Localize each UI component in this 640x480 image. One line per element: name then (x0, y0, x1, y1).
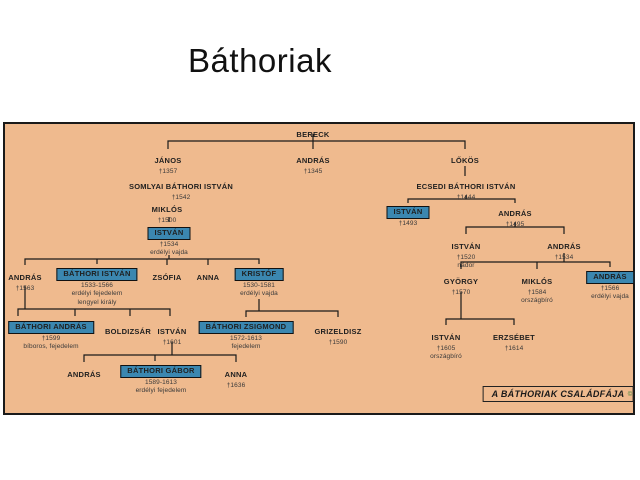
person-name: GYÖRGY (444, 278, 478, 287)
person-dates: †1563 (8, 285, 42, 293)
person-dates: †1534 (547, 254, 581, 262)
person-name: ANDRÁS (8, 274, 42, 283)
person-name: BOLDIZSÁR (105, 328, 151, 337)
person-name: ISTVÁN (147, 227, 190, 240)
person-name: ISTVÁN (157, 328, 186, 337)
person-name: ANDRÁS (586, 271, 634, 284)
person-name: BÁTHORI ISTVÁN (56, 268, 137, 281)
person-name: ANDRÁS (498, 210, 532, 219)
person-dates: †1566 (586, 285, 634, 293)
person-title: erdélyi fejedelem (120, 387, 201, 395)
person-title: erdélyi vajda (235, 290, 284, 298)
node-ecsedi-bathori-istvan: ECSEDI BÁTHORI ISTVÁN †1444 (416, 176, 515, 202)
node-kristof: KRISTÓF 1530-1581 erdélyi vajda (235, 263, 284, 299)
person-dates: †1605 (430, 345, 462, 353)
person-name: MIKLÓS (152, 206, 183, 215)
person-name: ANDRÁS (547, 243, 581, 252)
node-andras-1495: ANDRÁS †1495 (498, 203, 532, 229)
person-title: erdélyi vajda (586, 293, 634, 301)
person-dates: †1614 (493, 345, 535, 353)
tree-caption: A BÁTHORIAK CSALÁDFÁJA (483, 386, 634, 402)
person-name: ISTVÁN (451, 243, 480, 252)
copyright-watermark: © (627, 392, 633, 399)
person-dates: †1584 (521, 289, 553, 297)
person-dates: †1495 (498, 221, 532, 229)
person-name: GRIZELDISZ (314, 328, 361, 337)
person-title: erdélyi fejedelem (56, 290, 137, 298)
person-name: ANNA (225, 371, 248, 380)
person-name: ISTVÁN (431, 334, 460, 343)
person-name: ANDRÁS (67, 371, 101, 380)
person-dates: †1570 (444, 289, 478, 297)
person-dates: †1493 (386, 220, 429, 228)
person-name: MIKLÓS (522, 278, 553, 287)
node-andras-1534: ANDRÁS †1534 (547, 236, 581, 262)
person-title-2: lengyel király (56, 299, 137, 307)
person-dates: †1345 (296, 168, 330, 176)
node-gyorgy: GYÖRGY †1570 (444, 271, 478, 297)
node-istvan-nador: ISTVÁN †1520 nádor (451, 236, 480, 271)
node-bathori-zsigmond: BÁTHORI ZSIGMOND 1572-1613 fejedelem (199, 316, 294, 352)
node-andras-1566: ANDRÁS †1566 erdélyi vajda (586, 266, 634, 302)
node-anna: ANNA (197, 267, 220, 285)
person-dates: †1520 (451, 254, 480, 262)
node-miklos-1584: MIKLÓS †1584 országbíró (521, 271, 553, 306)
node-istvan-1601: ISTVÁN †1601 (157, 321, 186, 347)
node-erzsebet: ERZSÉBET †1614 (493, 327, 535, 353)
person-dates: †1599 (8, 335, 94, 343)
person-name: BÁTHORI ZSIGMOND (199, 321, 294, 334)
person-name: ZSÓFIA (153, 274, 182, 283)
person-dates: †1590 (314, 339, 361, 347)
person-dates: 1589-1613 (120, 379, 201, 387)
node-janos: JÁNOS †1357 (154, 150, 181, 176)
person-dates: †1534 (147, 241, 190, 249)
person-name: ERZSÉBET (493, 334, 535, 343)
person-name: LŐKÖS (451, 157, 479, 166)
person-title: bíboros, fejedelem (8, 343, 94, 351)
node-bathori-gabor: BÁTHORI GÁBOR 1589-1613 erdélyi fejedele… (120, 360, 201, 396)
node-bathori-andras-biboros: BÁTHORI ANDRÁS †1599 bíboros, fejedelem (8, 316, 94, 352)
person-dates: †1601 (157, 339, 186, 347)
node-andras-1345: ANDRÁS †1345 (296, 150, 330, 176)
person-name: BÁTHORI GÁBOR (120, 365, 201, 378)
person-name: BÁTHORI ANDRÁS (8, 321, 94, 334)
person-dates: †1636 (225, 382, 248, 390)
person-dates: †1444 (416, 194, 515, 202)
node-anna-1636: ANNA †1636 (225, 364, 248, 390)
person-name: ANNA (197, 274, 220, 283)
slide: Báthoriak BERECK JÁNOS †1357 ANDRÁS †134… (0, 0, 640, 480)
person-dates: 1530-1581 (235, 282, 284, 290)
person-title: országbíró (521, 297, 553, 305)
person-name: ISTVÁN (386, 206, 429, 219)
page-title: Báthoriak (188, 42, 332, 80)
person-name: BERECK (296, 131, 329, 140)
node-andras-1563: ANDRÁS †1563 (8, 267, 42, 293)
node-boldizsar: BOLDIZSÁR (105, 321, 151, 339)
person-dates: 1572-1613 (199, 335, 294, 343)
node-grizeldisz: GRIZELDISZ †1590 (314, 321, 361, 347)
node-bathori-istvan-kiraly: BÁTHORI ISTVÁN 1533-1566 erdélyi fejedel… (56, 263, 137, 307)
node-istvan-1493: ISTVÁN †1493 (386, 201, 429, 228)
person-title: fejedelem (199, 343, 294, 351)
person-dates: 1533-1566 (56, 282, 137, 290)
node-zsofia: ZSÓFIA (153, 267, 182, 285)
person-name: SOMLYAI BÁTHORI ISTVÁN (129, 183, 233, 192)
person-title: nádor (451, 262, 480, 270)
node-lokos: LŐKÖS (451, 150, 479, 168)
person-name: ANDRÁS (296, 157, 330, 166)
node-andras-g6: ANDRÁS (67, 364, 101, 382)
person-name: ECSEDI BÁTHORI ISTVÁN (416, 183, 515, 192)
person-title: országbíró (430, 353, 462, 361)
person-title: erdélyi vajda (147, 249, 190, 257)
node-istvan-1605: ISTVÁN †1605 országbíró (430, 327, 462, 362)
person-name: JÁNOS (154, 157, 181, 166)
node-istvan-vajda-1534: ISTVÁN †1534 erdélyi vajda (147, 222, 190, 258)
node-bereck: BERECK (296, 124, 329, 142)
person-name: KRISTÓF (235, 268, 284, 281)
